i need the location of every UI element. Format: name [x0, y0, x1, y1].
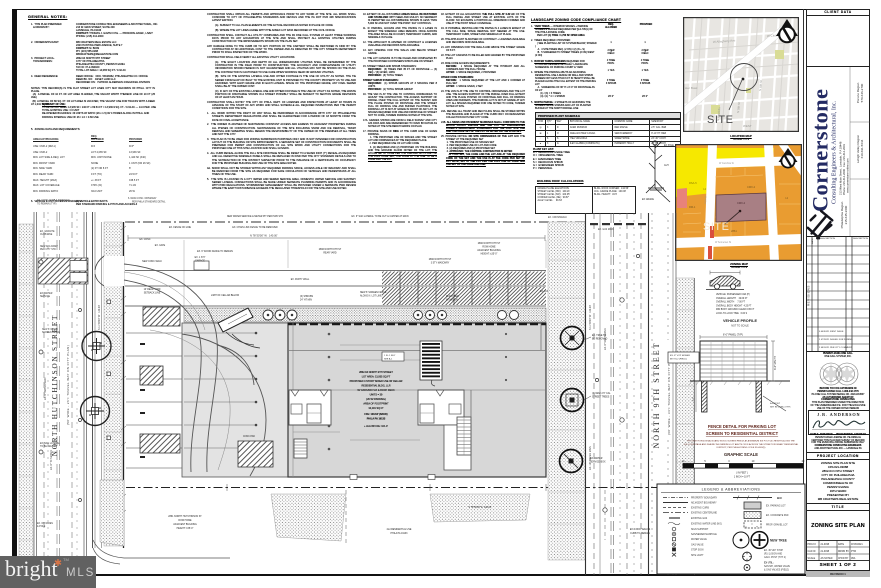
svg-text:SETBACK LINE: SETBACK LINE: [144, 292, 161, 295]
svg-text:PHILA PA 19133: PHILA PA 19133: [391, 532, 409, 535]
svg-text:FULL FRONTAGE AND WHERE THE PA: FULL FRONTAGE AND WHERE THE PARKING LOT …: [684, 443, 799, 446]
svg-text:DISTRICT, PER PHILA ZONING COD: DISTRICT, PER PHILA ZONING CODE §14-803(…: [717, 446, 766, 449]
svg-text:8'-0" PANEL (TYP): 8'-0" PANEL (TYP): [723, 334, 743, 337]
svg-text:LOCK-TO-LOCK TIME 6.00 S: LOCK-TO-LOCK TIME 6.00 S: [716, 313, 748, 315]
svg-text:5: 5: [704, 460, 706, 463]
svg-text:NOT TO SCALE: NOT TO SCALE: [731, 325, 749, 328]
svg-text:LOT AREA: 13,935 SQ FT: LOT AREA: 13,935 SQ FT: [362, 376, 391, 379]
svg-text:HEIGHT: ±35'-0": HEIGHT: ±35'-0": [177, 528, 194, 530]
svg-text:INV 91.2 (FIELD): INV 91.2 (FIELD): [670, 359, 687, 361]
svg-text:3 STY MASONRY: 3 STY MASONRY: [431, 262, 450, 265]
svg-text:NEW 6' SCREEN FENCE: NEW 6' SCREEN FENCE: [360, 292, 387, 294]
svg-text:SITE LIGHT: SITE LIGHT: [691, 555, 704, 557]
svg-text:PROVIDE HORIZONTAL BOARD WOOD: PROVIDE HORIZONTAL BOARD WOOD SCREEN FEN…: [687, 440, 795, 443]
svg-text:(R1-1) SIGN AND: (R1-1) SIGN AND: [764, 552, 782, 555]
svg-text:(50' WIDE - 26'± TRAVEL WAY ON: (50' WIDE - 26'± TRAVEL WAY ON CITY PLAN…: [66, 345, 70, 425]
svg-text:EX. 30"x30" STOP: EX. 30"x30" STOP: [764, 550, 784, 552]
svg-text:EX UTIL:: EX UTIL:: [764, 563, 774, 565]
svg-text:VEHICLE: PASSENGER CAR (P): VEHICLE: PASSENGER CAR (P): [716, 293, 750, 296]
svg-text:(6) SHRUBS: (6) SHRUBS: [300, 296, 313, 298]
svg-text:PER PHILA STANDARD DETAIL: PER PHILA STANDARD DETAIL: [132, 201, 166, 204]
svg-text:2860 NORTH 9TH ST: 2860 NORTH 9TH ST: [429, 259, 452, 261]
svg-text:EX. PARKING LOT: EX. PARKING LOT: [766, 505, 786, 508]
svg-text:2nd RESIDENTIAL USE: 2nd RESIDENTIAL USE: [387, 528, 412, 531]
svg-text:ALONG N. LOT LINE: ALONG N. LOT LINE: [360, 295, 382, 298]
svg-text:NEW 6' WOOD: NEW 6' WOOD: [42, 329, 58, 331]
svg-text:10: 10: [752, 460, 755, 463]
svg-text:PLANT BED: PLANT BED: [446, 295, 459, 298]
svg-text:OVERALL BODY HEIGHT 4.25 FT: OVERALL BODY HEIGHT 4.25 FT: [716, 304, 752, 307]
svg-text:20: 20: [802, 460, 805, 463]
svg-text:NEW ADA RAMP: NEW ADA RAMP: [40, 245, 58, 248]
svg-text:(60' WIDE - 34'± TRAVEL WAY ON: (60' WIDE - 34'± TRAVEL WAY ON CITY PLAN…: [667, 355, 671, 435]
svg-text:SERVICE: SERVICE: [40, 296, 51, 298]
svg-text:EX. 8" TC SEWER: EX. 8" TC SEWER: [50, 450, 53, 470]
svg-text:6'-0" MIN HT: 6'-0" MIN HT: [774, 356, 777, 370]
svg-text:EX. 8" VCP SEWER: EX. 8" VCP SEWER: [670, 355, 690, 357]
svg-text:SET IN CONC (TYP): SET IN CONC (TYP): [770, 407, 791, 409]
svg-text:NORTH 9TH STREET: NORTH 9TH STREET: [652, 341, 661, 448]
svg-text:EX. WATER: EX. WATER: [40, 292, 53, 295]
svg-text:EXISTING CURB: EXISTING CURB: [691, 508, 709, 510]
svg-text:GARAGE: GARAGE: [195, 260, 205, 263]
svg-text:WATER VALVE: WATER VALVE: [691, 538, 707, 541]
svg-text:PROPOSED 4 STORY MIXED USE W/: PROPOSED 4 STORY MIXED USE W/ CELLAR: [350, 380, 403, 383]
svg-text:SCREEN TO RESIDENTIAL DISTRICT: SCREEN TO RESIDENTIAL DISTRICT: [706, 431, 779, 436]
svg-text:SCREEN FENCE: SCREEN FENCE: [42, 332, 60, 334]
svg-text:EX. GAS MAIN: EX. GAS MAIN: [598, 228, 614, 231]
svg-text:& GAS VALVES (FIELD): & GAS VALVES (FIELD): [764, 568, 789, 571]
svg-text:SEE A-1: SEE A-1: [384, 358, 393, 361]
svg-text:PER CITY STD: PER CITY STD: [40, 249, 56, 251]
svg-text:EX. 8" SAN SEWER: EX. 8" SAN SEWER: [604, 328, 607, 350]
svg-text:FFE: 100.54' (NAVD): FFE: 100.54' (NAVD): [364, 413, 387, 416]
svg-text:UNITS = 39: UNITS = 39: [370, 394, 383, 397]
svg-text:NORTH HUTCHINSON STREET: NORTH HUTCHINSON STREET: [51, 314, 59, 456]
svg-text:EX. CROSSWALK: EX. CROSSWALK: [548, 216, 567, 219]
svg-text:GRAPHIC SCALE: GRAPHIC SCALE: [724, 452, 758, 457]
svg-text:GALV. POST (TYP 2): GALV. POST (TYP 2): [764, 556, 786, 559]
svg-text:OVERALL WIDTH 7.00 FT: OVERALL WIDTH 7.00 FT: [716, 301, 746, 304]
svg-text:EX. 6" WATER MAIN: EX. 6" WATER MAIN: [44, 377, 47, 400]
svg-text:VEHICLE PROFILE: VEHICLE PROFILE: [723, 319, 757, 323]
svg-text:B/C: B/C: [777, 496, 783, 500]
svg-text:GAS VALVE: GAS VALVE: [691, 544, 704, 547]
svg-text:ADJACENT BUILDING: ADJACENT BUILDING: [173, 523, 197, 526]
svg-text:2861 NORTH HUTCHINSON ST: 2861 NORTH HUTCHINSON ST: [168, 516, 202, 518]
svg-text:CONC PAD: CONC PAD: [243, 435, 255, 438]
svg-text:NEW WATER SERVICE & METER PIT: NEW WATER SERVICE & METER PIT PER PWD ST…: [227, 215, 284, 218]
svg-text:& POLE: & POLE: [37, 526, 46, 528]
svg-text:NEW TREE: NEW TREE: [770, 539, 787, 543]
svg-text:EX. CHAIN LINK FENCE TO BE REM: EX. CHAIN LINK FENCE TO BE REMOVED: [232, 226, 278, 229]
svg-text:REAR YARD: REAR YARD: [323, 252, 337, 255]
svg-text:ADJACENT BOUNDARY: ADJACENT BOUNDARY: [691, 502, 717, 505]
svg-text:TO REMAIN (TYP): TO REMAIN (TYP): [37, 203, 57, 206]
svg-text:OVERALL LENGTH 19.00 FT: OVERALL LENGTH 19.00 FT: [716, 297, 748, 300]
svg-text:CURB TO REMAIN: CURB TO REMAIN: [630, 532, 650, 535]
svg-text:EX. SAN LATERAL: EX. SAN LATERAL: [40, 442, 60, 445]
svg-text:ROW HOME: ROW HOME: [178, 520, 192, 522]
svg-text:EXISTING WATER LINE (NO): EXISTING WATER LINE (NO): [691, 523, 722, 526]
svg-text:0: 0: [728, 460, 730, 463]
svg-text:TO BE REUSED: TO BE REUSED: [40, 446, 57, 448]
svg-text:6. NEW CONC. DRIVEWAY: 6. NEW CONC. DRIVEWAY: [128, 197, 157, 200]
svg-text:HEIGHT: ±35'-0": HEIGHT: ±35'-0": [481, 254, 498, 256]
svg-text:10,191 SQ FT: 10,191 SQ FT: [368, 407, 384, 410]
svg-text:S 11°40'00" W 130.00': S 11°40'00" W 130.00': [98, 304, 101, 330]
svg-text:S 78°30'00" E 140.00': S 78°30'00" E 140.00': [469, 507, 492, 509]
svg-text:1 INCH = 10 FT: 1 INCH = 10 FT: [734, 476, 751, 478]
svg-text:EX. 6' WOOD FENCE TO REMAIN: EX. 6' WOOD FENCE TO REMAIN: [197, 250, 233, 253]
svg-text:(3) NEW 2.5" CAL: (3) NEW 2.5" CAL: [592, 392, 611, 395]
svg-text:EX. 1 STY: EX. 1 STY: [195, 257, 206, 259]
svg-text:EX. FENCE ON LINE: EX. FENCE ON LINE: [169, 227, 191, 229]
svg-text:3'-0": 3'-0": [693, 397, 695, 402]
svg-text:PHILA PA 19133: PHILA PA 19133: [367, 418, 386, 421]
svg-text:4x4 POST: 4x4 POST: [770, 403, 781, 405]
svg-text:CURB LINE: CURB LINE: [40, 234, 53, 236]
svg-text:S 11°40'00" W 100.00': S 11°40'00" W 100.00': [589, 304, 592, 330]
svg-text:EX. GRANITE: EX. GRANITE: [40, 230, 55, 233]
svg-text:EX. CONC CURB & SIDEWALK: EX. CONC CURB & SIDEWALK: [37, 199, 70, 202]
svg-text:SERVICE BOX: SERVICE BOX: [590, 462, 606, 464]
svg-text:ADJACENT BUILDING: ADJACENT BUILDING: [477, 249, 501, 252]
svg-text:EX. GATE: EX. GATE: [155, 244, 166, 247]
svg-text:EX. CONCRETE PAD: EX. CONCRETE PAD: [766, 514, 789, 517]
svg-text:2860 NORTH 9TH ST: 2860 NORTH 9TH ST: [478, 243, 501, 245]
svg-text:W/ GROUND FLR & ROOF DECK: W/ GROUND FLR & ROOF DECK: [357, 389, 395, 392]
svg-text:N 78°30'00" W 140.00': N 78°30'00" W 140.00': [250, 234, 278, 238]
svg-text:EXISTING GAS: EXISTING GAS: [691, 517, 708, 520]
svg-text:SIGN SUPPORT: SIGN SUPPORT: [691, 529, 709, 531]
svg-text:(26 W/ PARKING): (26 W/ PARKING): [366, 398, 386, 401]
svg-text:AREA OF FOOTPRINT: AREA OF FOOTPRINT: [363, 403, 389, 406]
svg-text:LEGEND & ABBREVIATIONS: LEGEND & ABBREVIATIONS: [702, 488, 761, 492]
svg-text:EX. CONC: EX. CONC: [139, 239, 150, 241]
svg-text:EX. PARTY WALL: EX. PARTY WALL: [291, 278, 310, 281]
svg-text:1 FL-1 KEY: 1 FL-1 KEY: [384, 355, 396, 357]
svg-text:EX. 10" WATER MAIN: EX. 10" WATER MAIN: [589, 446, 592, 470]
svg-text:SAN MH, WATER VALVE: SAN MH, WATER VALVE: [764, 565, 790, 568]
svg-text:RESIDENTIAL BLDG, LLR: RESIDENTIAL BLDG, LLR: [361, 385, 390, 388]
svg-text:LIMIT OF CELLAR BELOW: LIMIT OF CELLAR BELOW: [211, 294, 240, 297]
svg-text:PROP. GRAVEL LOT: PROP. GRAVEL LOT: [766, 524, 788, 527]
svg-text:PROPERTY BOUNDARY: PROPERTY BOUNDARY: [691, 497, 718, 500]
svg-text:MIN BODY GROUND CLEAR 0.95 FT: MIN BODY GROUND CLEAR 0.95 FT: [716, 308, 755, 311]
svg-text:STREET TREES: STREET TREES: [592, 397, 610, 399]
svg-text:EX. OH WIRES: EX. OH WIRES: [37, 523, 53, 525]
svg-text:+ ALLOW FFE: 101.0': + ALLOW FFE: 101.0': [364, 425, 388, 428]
svg-text:NEW CONC WALK: NEW CONC WALK: [142, 260, 162, 263]
svg-text:( IN FEET ): ( IN FEET ): [736, 473, 748, 475]
svg-text:FENCE DETAIL FOR PARKING LOT: FENCE DETAIL FOR PARKING LOT: [708, 424, 777, 429]
svg-text:W/ MULCH: W/ MULCH: [446, 300, 458, 302]
svg-text:STOP SIGN: STOP SIGN: [691, 550, 704, 552]
svg-text:EX. 6" SAN LATERAL TO BE CUT &: EX. 6" SAN LATERAL TO BE CUT & CAPPED AT…: [351, 215, 408, 218]
svg-text:2862-64 NORTH 9TH STREET: 2862-64 NORTH 9TH STREET: [359, 371, 393, 374]
svg-text:2866 NORTH 9TH ST: 2866 NORTH 9TH ST: [319, 249, 342, 251]
svg-text:ROW HOME: ROW HOME: [482, 247, 496, 249]
svg-text:24" HT MIN: 24" HT MIN: [300, 300, 312, 302]
svg-text:SAN/SEWER MANHOLE: SAN/SEWER MANHOLE: [691, 533, 717, 536]
svg-text:EX. CONC WALK &: EX. CONC WALK &: [630, 528, 651, 531]
svg-text:EXISTING CENTERLINE: EXISTING CENTERLINE: [691, 513, 717, 515]
